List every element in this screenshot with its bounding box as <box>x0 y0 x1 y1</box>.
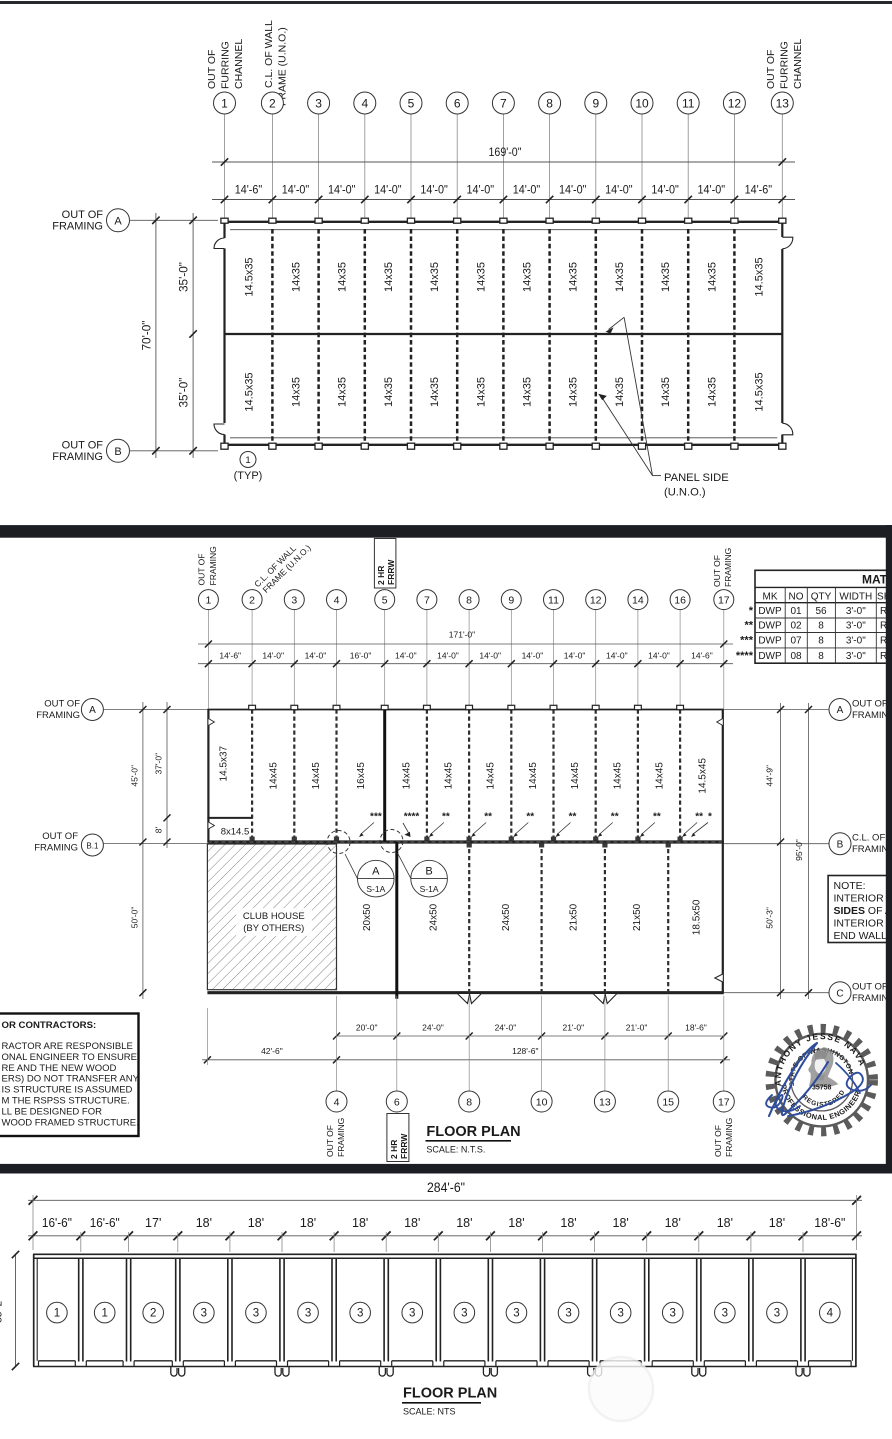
svg-text:14x35: 14x35 <box>614 262 626 292</box>
svg-text:6: 6 <box>454 96 461 110</box>
svg-text:14x35: 14x35 <box>522 262 534 292</box>
svg-text:8: 8 <box>466 1096 472 1108</box>
svg-text:M THE RSPSS STRUCTURE.: M THE RSPSS STRUCTURE. <box>2 1096 130 1107</box>
svg-text:NOTE:: NOTE: <box>834 880 866 892</box>
svg-text:PANEL SIDE: PANEL SIDE <box>664 472 729 484</box>
svg-text:CLUB HOUSE: CLUB HOUSE <box>243 911 305 922</box>
svg-text:SIDES OF ALL: SIDES OF ALL <box>834 905 892 917</box>
svg-text:284'-6": 284'-6" <box>427 1180 465 1195</box>
svg-text:FURRING: FURRING <box>778 41 790 89</box>
svg-text:14x35: 14x35 <box>568 377 580 407</box>
svg-text:FRRW: FRRW <box>386 559 396 585</box>
svg-text:14'-6": 14'-6" <box>745 183 773 197</box>
svg-text:18': 18' <box>665 1216 681 1230</box>
svg-text:14x35: 14x35 <box>660 262 672 292</box>
svg-text:14'-6": 14'-6" <box>691 651 713 661</box>
svg-text:OR CONTRACTORS:: OR CONTRACTORS: <box>2 1020 97 1031</box>
svg-text:**: ** <box>569 812 577 823</box>
svg-text:35'-0": 35'-0" <box>177 262 191 292</box>
svg-text:MK: MK <box>763 592 778 603</box>
svg-text:C.L. OF: C.L. OF <box>852 833 885 844</box>
svg-text:14'-0": 14'-0" <box>559 183 587 197</box>
svg-text:8': 8' <box>154 826 164 833</box>
svg-text:18': 18' <box>196 1216 212 1230</box>
svg-text:18': 18' <box>300 1216 316 1230</box>
svg-text:3: 3 <box>670 1308 676 1320</box>
svg-text:14x35: 14x35 <box>383 262 395 292</box>
svg-text:7: 7 <box>424 594 430 606</box>
svg-text:14x45: 14x45 <box>528 762 539 790</box>
svg-text:*: * <box>708 812 712 823</box>
svg-text:14'-0": 14'-0" <box>479 651 501 661</box>
svg-text:B: B <box>837 839 844 850</box>
svg-text:14'-0": 14'-0" <box>262 651 284 661</box>
svg-text:14'-0": 14'-0" <box>328 183 356 197</box>
svg-text:16'-6": 16'-6" <box>42 1216 72 1230</box>
svg-text:FRAMING: FRAMING <box>724 1118 734 1157</box>
svg-text:37'-0": 37'-0" <box>154 753 164 775</box>
svg-text:**: ** <box>442 812 450 823</box>
svg-text:6: 6 <box>394 1096 400 1108</box>
svg-text:*: * <box>749 605 754 617</box>
svg-text:14'-0": 14'-0" <box>605 183 633 197</box>
svg-text:14x35: 14x35 <box>706 377 718 407</box>
svg-text:ONAL ENGINEER TO ENSURE: ONAL ENGINEER TO ENSURE <box>2 1052 138 1063</box>
svg-text:16x45: 16x45 <box>356 762 367 790</box>
svg-text:56: 56 <box>815 606 827 617</box>
svg-text:3: 3 <box>305 1308 311 1320</box>
svg-text:10: 10 <box>635 96 649 110</box>
svg-text:21x50: 21x50 <box>632 903 643 931</box>
svg-text:ERS) DO NOT TRANSFER ANY: ERS) DO NOT TRANSFER ANY <box>2 1074 140 1085</box>
svg-text:1: 1 <box>54 1308 60 1320</box>
svg-text:2: 2 <box>269 96 276 110</box>
svg-text:FRAMING: FRAMING <box>34 843 78 854</box>
svg-text:OUT OF: OUT OF <box>206 50 218 89</box>
svg-text:21x50: 21x50 <box>569 903 580 931</box>
svg-text:END WALLS W: END WALLS W <box>834 930 892 942</box>
svg-text:13: 13 <box>776 96 790 110</box>
svg-text:3'-0": 3'-0" <box>846 651 866 662</box>
svg-text:21'-0": 21'-0" <box>626 1023 648 1033</box>
svg-text:RE AND THE NEW WOOD: RE AND THE NEW WOOD <box>2 1063 117 1074</box>
svg-text:QTY: QTY <box>811 592 832 603</box>
svg-text:14x35: 14x35 <box>660 377 672 407</box>
svg-text:10: 10 <box>536 1096 548 1108</box>
svg-text:FRRW: FRRW <box>399 1133 409 1159</box>
svg-text:24x50: 24x50 <box>501 903 512 931</box>
svg-text:3: 3 <box>617 1308 623 1320</box>
svg-text:14.5x35: 14.5x35 <box>243 372 255 411</box>
svg-text:11: 11 <box>548 594 559 606</box>
svg-text:****: **** <box>736 650 754 662</box>
svg-text:14x45: 14x45 <box>401 762 412 790</box>
svg-text:8: 8 <box>466 594 472 606</box>
svg-text:B: B <box>425 866 432 878</box>
svg-text:14.5x45: 14.5x45 <box>697 758 708 794</box>
svg-text:14'-6": 14'-6" <box>235 183 263 197</box>
svg-text:50'-0": 50'-0" <box>130 907 140 929</box>
svg-text:14x45: 14x45 <box>570 762 581 790</box>
svg-text:3: 3 <box>315 96 322 110</box>
svg-text:FRAMING: FRAMING <box>723 548 733 587</box>
svg-text:8x14.5: 8x14.5 <box>221 827 250 838</box>
svg-text:SCALE: NTS: SCALE: NTS <box>403 1407 456 1417</box>
svg-text:3: 3 <box>253 1308 259 1320</box>
svg-text:18': 18' <box>508 1216 524 1230</box>
svg-text:3: 3 <box>201 1308 207 1320</box>
svg-text:4: 4 <box>334 594 340 606</box>
svg-text:17: 17 <box>718 594 730 606</box>
svg-text:14'-0": 14'-0" <box>395 651 417 661</box>
svg-text:24'-0": 24'-0" <box>422 1023 444 1033</box>
svg-text:DWP: DWP <box>758 606 782 617</box>
svg-text:11: 11 <box>682 96 695 110</box>
svg-text:14.5x35: 14.5x35 <box>753 372 765 411</box>
svg-text:44'-9": 44'-9" <box>765 765 775 787</box>
svg-text:14'-0": 14'-0" <box>564 651 586 661</box>
svg-text:C.L. OF WALL: C.L. OF WALL <box>263 20 275 88</box>
svg-text:169'-0": 169'-0" <box>489 145 522 159</box>
svg-text:1: 1 <box>245 455 250 466</box>
svg-text:3: 3 <box>565 1308 571 1320</box>
svg-text:24x50: 24x50 <box>429 903 440 931</box>
svg-text:14'-0": 14'-0" <box>467 183 495 197</box>
svg-text:2: 2 <box>150 1308 156 1320</box>
svg-text:IS STRUCTURE IS ASSUMED: IS STRUCTURE IS ASSUMED <box>2 1085 133 1096</box>
svg-text:02: 02 <box>790 620 802 631</box>
svg-text:OUT OF: OUT OF <box>42 831 78 842</box>
svg-text:17: 17 <box>718 1096 730 1108</box>
svg-text:C: C <box>836 988 843 999</box>
svg-text:08: 08 <box>790 651 802 662</box>
svg-text:14'-6": 14'-6" <box>219 651 241 661</box>
svg-text:OUT OF: OUT OF <box>62 439 104 451</box>
svg-text:INTERIOR HOR: INTERIOR HOR <box>834 918 892 930</box>
svg-text:18': 18' <box>717 1216 733 1230</box>
svg-text:3'-0": 3'-0" <box>846 606 866 617</box>
svg-text:3'-0": 3'-0" <box>846 620 866 631</box>
svg-text:3: 3 <box>291 594 297 606</box>
svg-text:14x35: 14x35 <box>429 262 441 292</box>
svg-text:18': 18' <box>456 1216 472 1230</box>
svg-text:3: 3 <box>513 1308 519 1320</box>
svg-text:14'-0": 14'-0" <box>522 651 544 661</box>
svg-text:OUT OF: OUT OF <box>852 982 888 993</box>
svg-text:CHANNEL: CHANNEL <box>233 39 245 89</box>
svg-text:14x35: 14x35 <box>475 377 487 407</box>
svg-text:14x45: 14x45 <box>612 762 623 790</box>
svg-text:70'-0": 70'-0" <box>140 321 154 351</box>
svg-text:35'-2": 35'-2" <box>0 1297 5 1323</box>
svg-text:14'-0": 14'-0" <box>606 651 628 661</box>
svg-text:18'-6": 18'-6" <box>685 1023 707 1033</box>
svg-text:128'-6": 128'-6" <box>512 1046 538 1056</box>
svg-text:OUT OF: OUT OF <box>852 699 888 710</box>
svg-text:OUT OF: OUT OF <box>712 555 722 587</box>
svg-text:14x35: 14x35 <box>522 377 534 407</box>
svg-text:8: 8 <box>818 620 824 631</box>
svg-text:14'-0": 14'-0" <box>437 651 459 661</box>
svg-text:14.5x37: 14.5x37 <box>219 745 230 781</box>
svg-text:15: 15 <box>662 1096 674 1108</box>
svg-text:14x35: 14x35 <box>337 377 349 407</box>
svg-text:2 HR: 2 HR <box>389 1140 399 1159</box>
svg-text:CHANNEL: CHANNEL <box>792 39 804 89</box>
svg-text:171'-0": 171'-0" <box>449 630 475 640</box>
svg-text:(BY OTHERS): (BY OTHERS) <box>243 923 304 934</box>
svg-text:20'-0": 20'-0" <box>356 1023 378 1033</box>
svg-text:***: *** <box>740 635 754 647</box>
svg-text:14.5x35: 14.5x35 <box>753 257 765 296</box>
svg-text:9: 9 <box>592 96 599 110</box>
svg-text:**: ** <box>653 812 661 823</box>
svg-text:18.5x50: 18.5x50 <box>692 899 703 935</box>
svg-text:14x35: 14x35 <box>475 262 487 292</box>
svg-text:14'-0": 14'-0" <box>698 183 726 197</box>
svg-text:3: 3 <box>722 1308 728 1320</box>
svg-text:14'-0": 14'-0" <box>513 183 541 197</box>
svg-text:4: 4 <box>827 1308 834 1320</box>
svg-text:5: 5 <box>408 96 415 110</box>
svg-text:***: *** <box>370 812 382 823</box>
svg-text:FLOOR PLAN: FLOOR PLAN <box>403 1386 497 1402</box>
svg-text:18': 18' <box>769 1216 785 1230</box>
svg-text:FRAMING: FRAMING <box>52 221 103 233</box>
svg-text:DWP: DWP <box>758 651 782 662</box>
svg-text:01: 01 <box>790 606 802 617</box>
svg-text:14'-0": 14'-0" <box>374 183 402 197</box>
svg-text:1: 1 <box>221 96 228 110</box>
svg-text:07: 07 <box>790 636 802 647</box>
svg-text:14'-0": 14'-0" <box>305 651 327 661</box>
svg-text:14x35: 14x35 <box>291 377 303 407</box>
svg-text:14x45: 14x45 <box>655 762 666 790</box>
svg-text:16'-6": 16'-6" <box>90 1216 120 1230</box>
svg-text:4: 4 <box>361 96 368 110</box>
svg-text:5: 5 <box>382 594 388 606</box>
svg-text:14'-0": 14'-0" <box>420 183 448 197</box>
svg-text:INTERIOR HOR: INTERIOR HOR <box>834 893 892 905</box>
svg-text:OUT OF: OUT OF <box>44 699 80 710</box>
svg-text:14x35: 14x35 <box>568 262 580 292</box>
svg-text:**: ** <box>611 812 619 823</box>
svg-text:7: 7 <box>500 96 507 110</box>
svg-text:14'-0": 14'-0" <box>648 651 670 661</box>
svg-text:WIDTH: WIDTH <box>839 592 872 603</box>
svg-text:**: ** <box>744 619 753 631</box>
svg-text:14'-0": 14'-0" <box>282 183 310 197</box>
svg-text:20x50: 20x50 <box>362 903 373 931</box>
svg-text:FRAMING: FRAMING <box>208 546 218 585</box>
svg-text:9: 9 <box>508 594 514 606</box>
svg-text:FRAMING: FRAMING <box>36 710 80 721</box>
svg-text:FRAMING: FRAMING <box>336 1118 346 1157</box>
svg-text:2: 2 <box>249 594 255 606</box>
svg-text:35'-0": 35'-0" <box>177 378 191 408</box>
svg-text:17': 17' <box>145 1216 161 1230</box>
svg-text:LL BE DESIGNED FOR: LL BE DESIGNED FOR <box>2 1106 103 1117</box>
svg-text:16'-0": 16'-0" <box>350 651 372 661</box>
svg-text:16: 16 <box>674 594 686 606</box>
svg-text:3'-0": 3'-0" <box>846 636 866 647</box>
svg-text:B.1: B.1 <box>86 842 99 851</box>
svg-text:NO: NO <box>789 592 804 603</box>
svg-text:OUT OF: OUT OF <box>325 1125 335 1157</box>
svg-text:FURRING: FURRING <box>219 41 231 89</box>
svg-text:14x45: 14x45 <box>486 762 497 790</box>
svg-text:8: 8 <box>818 651 824 662</box>
svg-text:35758: 35758 <box>812 1085 832 1092</box>
svg-text:13: 13 <box>599 1096 611 1108</box>
svg-text:14.5x35: 14.5x35 <box>243 257 255 296</box>
svg-text:FRAMING: FRAMING <box>52 451 103 463</box>
svg-text:4: 4 <box>334 1096 340 1108</box>
svg-text:8: 8 <box>546 96 553 110</box>
svg-text:18': 18' <box>560 1216 576 1230</box>
svg-text:18': 18' <box>404 1216 420 1230</box>
svg-text:**: ** <box>695 812 703 823</box>
svg-text:RACTOR ARE RESPONSIBLE: RACTOR ARE RESPONSIBLE <box>2 1041 133 1052</box>
svg-text:18': 18' <box>352 1216 368 1230</box>
svg-text:12: 12 <box>728 96 742 110</box>
svg-text:S-1A: S-1A <box>420 884 439 894</box>
svg-text:14x35: 14x35 <box>429 377 441 407</box>
svg-text:3: 3 <box>461 1308 467 1320</box>
svg-text:A: A <box>372 866 380 878</box>
svg-text:50'-3": 50'-3" <box>765 907 775 929</box>
svg-text:B: B <box>114 446 121 458</box>
svg-text:WOOD FRAMED STRUCTURE.: WOOD FRAMED STRUCTURE. <box>2 1117 139 1128</box>
svg-text:**: ** <box>526 812 534 823</box>
svg-text:3: 3 <box>774 1308 780 1320</box>
svg-text:(TYP): (TYP) <box>234 470 263 482</box>
svg-text:14x35: 14x35 <box>614 377 626 407</box>
svg-text:(U.N.O.): (U.N.O.) <box>664 487 706 499</box>
svg-text:14'-0": 14'-0" <box>651 183 679 197</box>
svg-text:SCALE: N.T.S.: SCALE: N.T.S. <box>426 1145 485 1155</box>
svg-text:1: 1 <box>205 594 211 606</box>
svg-text:****: **** <box>404 812 420 823</box>
svg-text:FLOOR PLAN: FLOOR PLAN <box>426 1124 520 1140</box>
svg-text:14x45: 14x45 <box>311 762 322 790</box>
svg-text:12: 12 <box>590 594 602 606</box>
svg-text:21'-0": 21'-0" <box>562 1023 584 1033</box>
svg-text:A: A <box>89 705 96 716</box>
svg-text:3: 3 <box>357 1308 363 1320</box>
svg-text:95'-0": 95'-0" <box>794 839 804 861</box>
svg-text:18'-6": 18'-6" <box>814 1216 845 1230</box>
svg-text:OUT OF: OUT OF <box>713 1125 723 1157</box>
svg-text:18': 18' <box>613 1216 629 1230</box>
svg-text:1: 1 <box>101 1308 107 1320</box>
svg-text:A: A <box>837 705 844 716</box>
svg-text:2 HR: 2 HR <box>376 566 386 585</box>
svg-text:14x35: 14x35 <box>706 262 718 292</box>
svg-text:42'-6": 42'-6" <box>261 1046 283 1056</box>
svg-text:S-1A: S-1A <box>366 884 385 894</box>
svg-text:OUT OF: OUT OF <box>197 554 207 586</box>
svg-text:14x35: 14x35 <box>291 262 303 292</box>
svg-text:45'-0": 45'-0" <box>130 765 140 787</box>
svg-text:18': 18' <box>248 1216 264 1230</box>
svg-text:**: ** <box>484 812 492 823</box>
svg-text:A: A <box>114 215 122 227</box>
svg-text:14x35: 14x35 <box>337 262 349 292</box>
svg-text:OUT OF: OUT OF <box>765 50 777 89</box>
svg-text:24'-0": 24'-0" <box>495 1023 517 1033</box>
svg-text:3: 3 <box>409 1308 415 1320</box>
svg-text:OUT OF: OUT OF <box>62 209 104 221</box>
svg-text:14: 14 <box>632 594 644 606</box>
svg-text:14x45: 14x45 <box>269 762 280 790</box>
svg-text:8: 8 <box>818 636 824 647</box>
svg-text:14x45: 14x45 <box>444 762 455 790</box>
svg-text:DWP: DWP <box>758 620 782 631</box>
svg-text:DWP: DWP <box>758 636 782 647</box>
svg-text:14x35: 14x35 <box>383 377 395 407</box>
